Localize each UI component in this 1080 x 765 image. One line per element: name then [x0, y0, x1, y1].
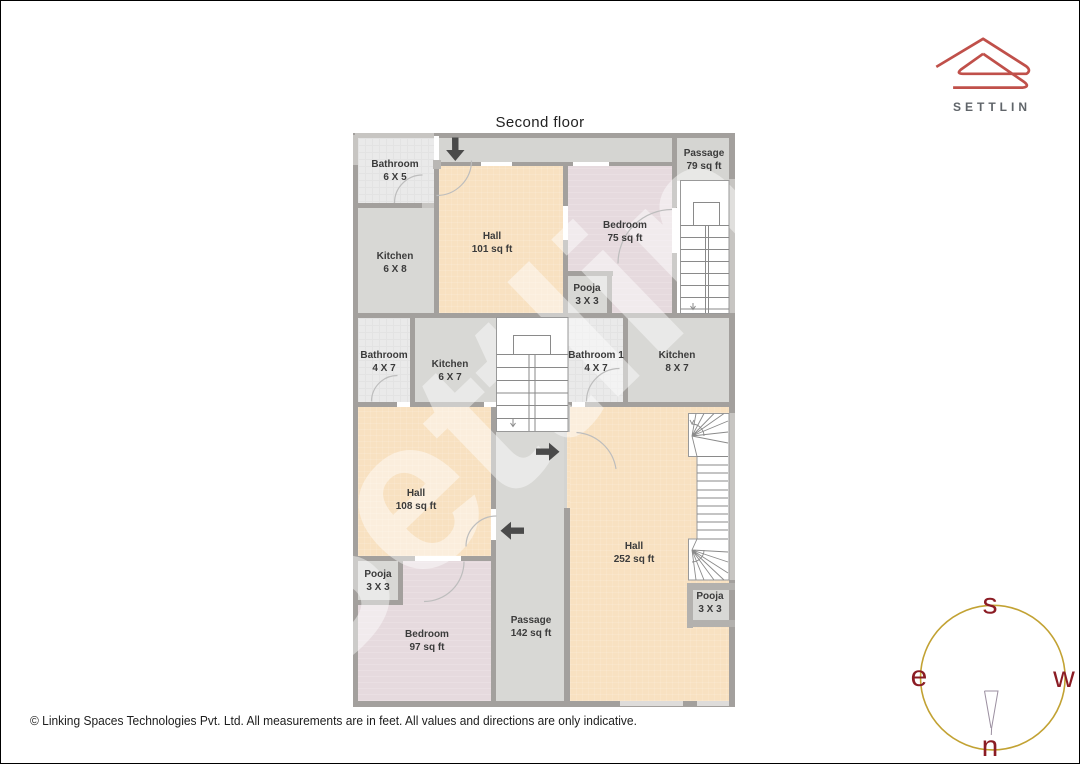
svg-text:s: s — [983, 588, 998, 621]
svg-text:e: e — [911, 660, 928, 693]
svg-text:n: n — [982, 730, 999, 763]
svg-text:w: w — [1052, 661, 1075, 694]
